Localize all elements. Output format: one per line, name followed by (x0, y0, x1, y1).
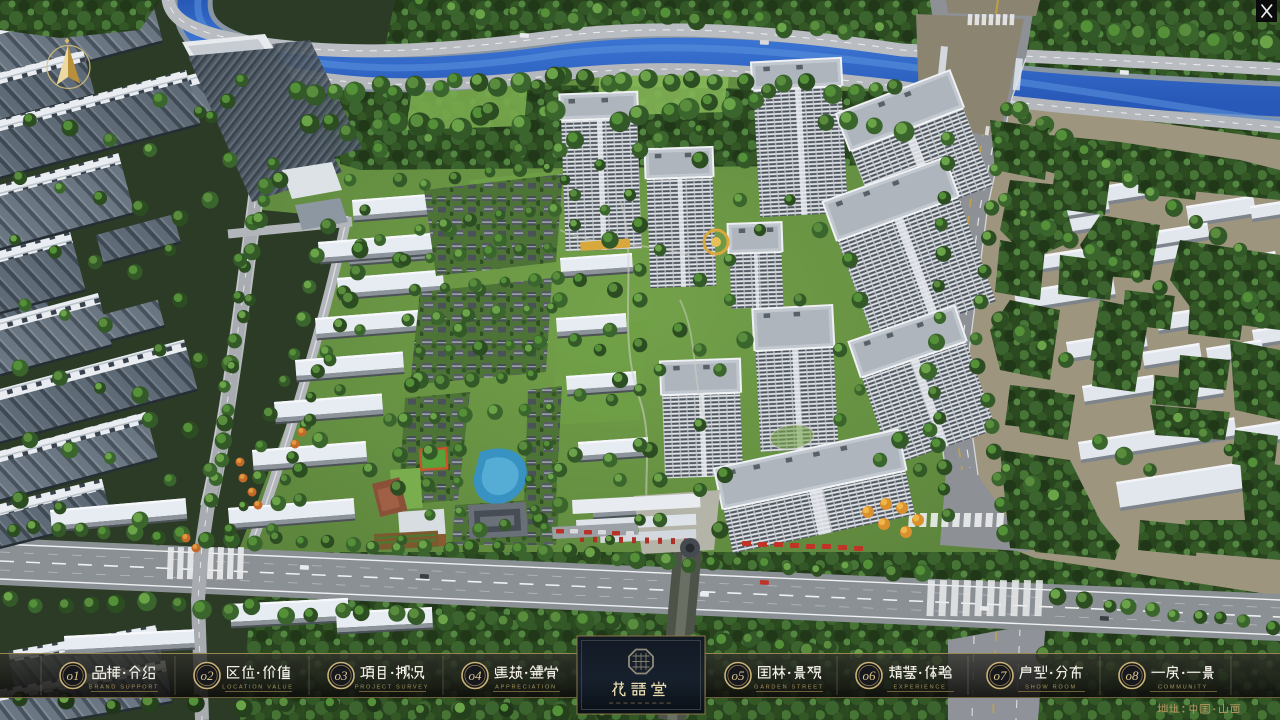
svg-text:LOCATION VALUE: LOCATION VALUE (222, 685, 293, 691)
svg-text:o3: o3 (335, 668, 349, 683)
svg-text:PROJECT SURVEY: PROJECT SURVEY (355, 685, 429, 691)
svg-text:o8: o8 (1126, 668, 1140, 683)
svg-text:APPRECIATION: APPRECIATION (495, 685, 557, 691)
svg-text:SHOW ROOM: SHOW ROOM (1025, 685, 1077, 691)
svg-text:o5: o5 (732, 668, 746, 683)
svg-text:o2: o2 (201, 668, 215, 683)
svg-text:COMMUNITY: COMMUNITY (1158, 685, 1208, 691)
svg-text:BRAND SUPPORT: BRAND SUPPORT (89, 685, 159, 691)
svg-text:o7: o7 (994, 668, 1008, 683)
svg-text:GARDEN STREET: GARDEN STREET (754, 685, 824, 691)
svg-text:EXPERIENCE: EXPERIENCE (893, 685, 946, 691)
svg-text:o1: o1 (67, 668, 80, 683)
svg-text:o6: o6 (863, 668, 877, 683)
svg-text:o4: o4 (469, 668, 483, 683)
